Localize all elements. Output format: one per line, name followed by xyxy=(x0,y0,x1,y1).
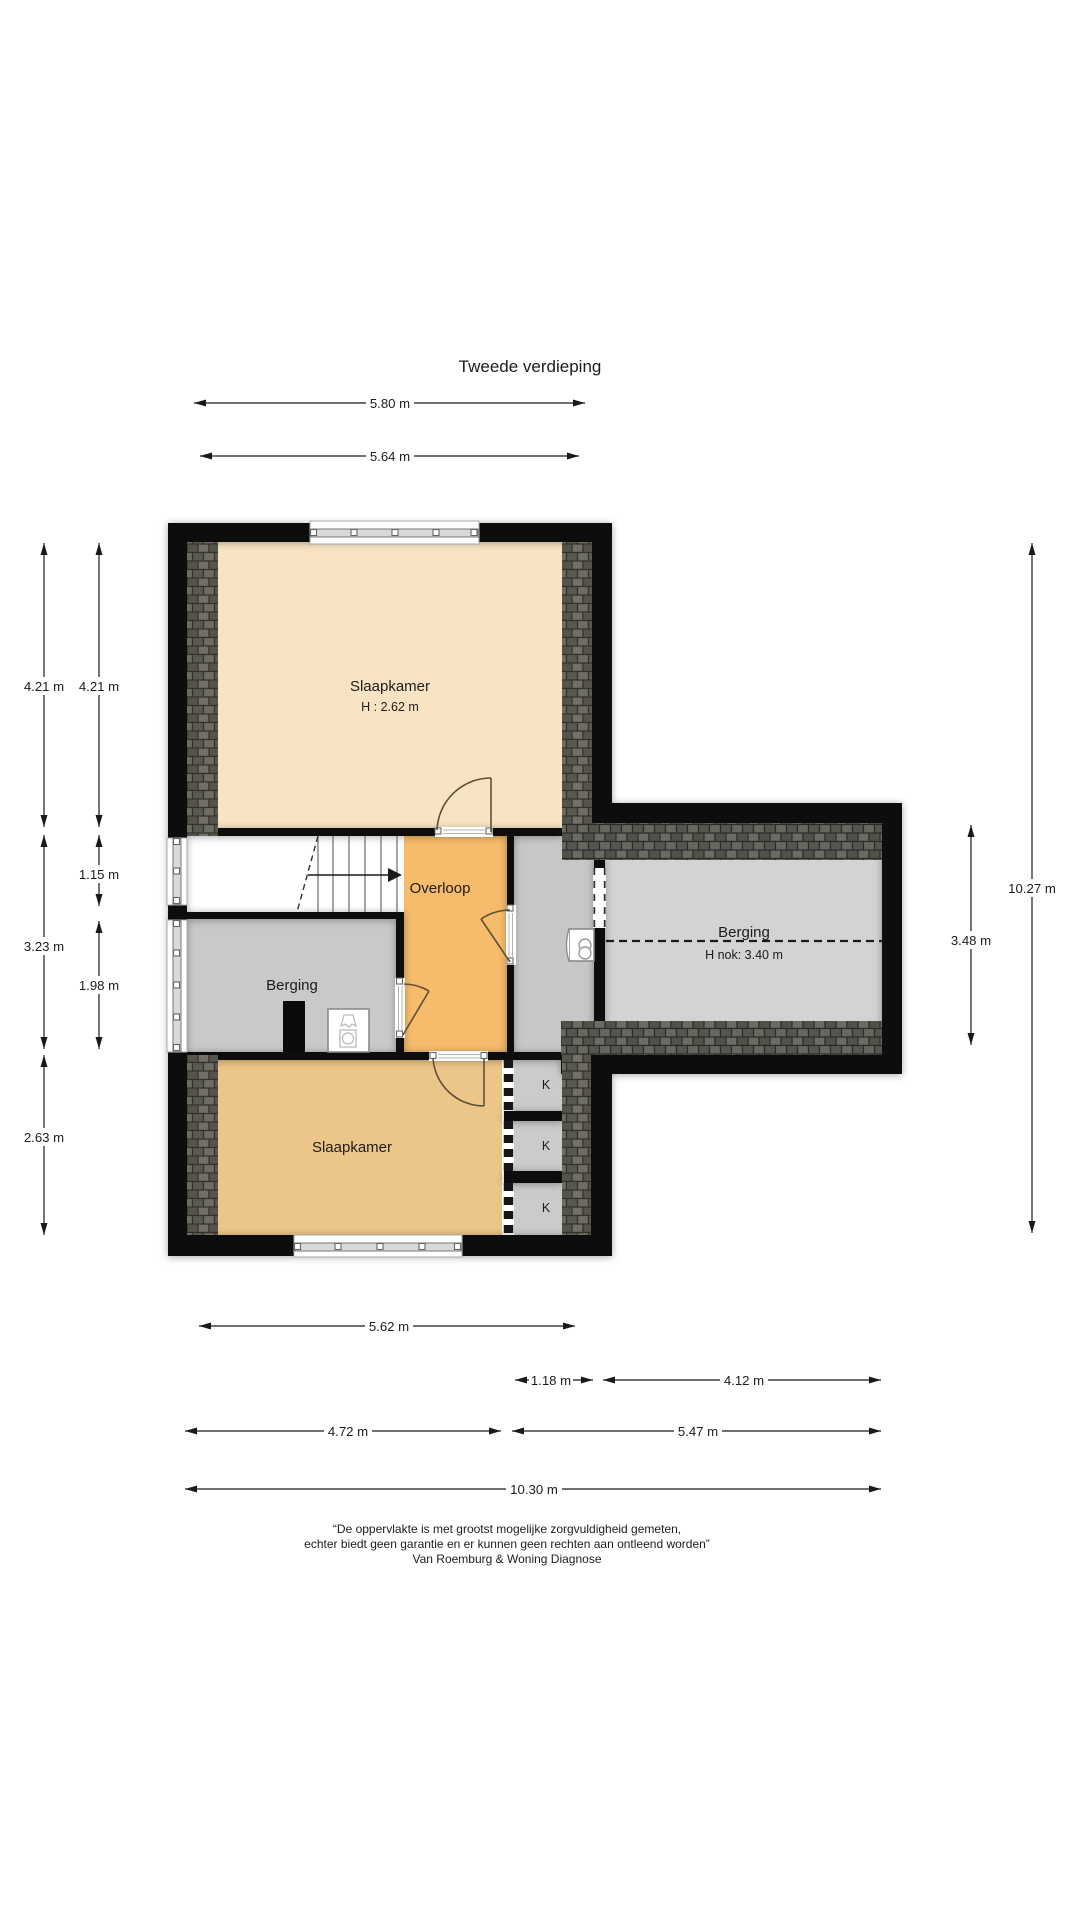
svg-text:3.48 m: 3.48 m xyxy=(951,933,991,948)
svg-text:1.18 m: 1.18 m xyxy=(531,1373,571,1388)
svg-text:H nok: 3.40 m: H nok: 3.40 m xyxy=(705,948,783,962)
svg-text:K: K xyxy=(542,1139,551,1153)
svg-text:1.98 m: 1.98 m xyxy=(79,978,119,993)
svg-text:Slaapkamer: Slaapkamer xyxy=(350,678,430,695)
svg-text:10.27 m: 10.27 m xyxy=(1008,881,1056,896)
svg-text:Berging: Berging xyxy=(718,924,770,941)
svg-text:Overloop: Overloop xyxy=(410,880,471,897)
svg-text:“De oppervlakte is met grootst: “De oppervlakte is met grootst mogelijke… xyxy=(333,1522,681,1536)
svg-text:Van Roemburg & Woning Diagnose: Van Roemburg & Woning Diagnose xyxy=(413,1552,602,1566)
svg-text:Berging: Berging xyxy=(266,977,318,994)
svg-text:5.62 m: 5.62 m xyxy=(369,1319,409,1334)
svg-text:4.21 m: 4.21 m xyxy=(79,679,119,694)
svg-text:4.21 m: 4.21 m xyxy=(24,679,64,694)
svg-text:5.47 m: 5.47 m xyxy=(678,1424,718,1439)
svg-text:echter biedt geen garantie en: echter biedt geen garantie en er kunnen … xyxy=(304,1537,710,1551)
svg-text:K: K xyxy=(542,1201,551,1215)
svg-text:4.12 m: 4.12 m xyxy=(724,1373,764,1388)
svg-text:H : 2.62 m: H : 2.62 m xyxy=(361,700,419,714)
svg-text:Tweede verdieping: Tweede verdieping xyxy=(459,357,602,376)
svg-text:10.30 m: 10.30 m xyxy=(510,1482,558,1497)
svg-text:5.80 m: 5.80 m xyxy=(370,396,410,411)
svg-text:2.63 m: 2.63 m xyxy=(24,1130,64,1145)
svg-text:K: K xyxy=(542,1078,551,1092)
svg-text:Slaapkamer: Slaapkamer xyxy=(312,1139,392,1156)
svg-text:1.15 m: 1.15 m xyxy=(79,867,119,882)
svg-text:5.64 m: 5.64 m xyxy=(370,449,410,464)
svg-text:4.72 m: 4.72 m xyxy=(328,1424,368,1439)
svg-text:3.23 m: 3.23 m xyxy=(24,939,64,954)
